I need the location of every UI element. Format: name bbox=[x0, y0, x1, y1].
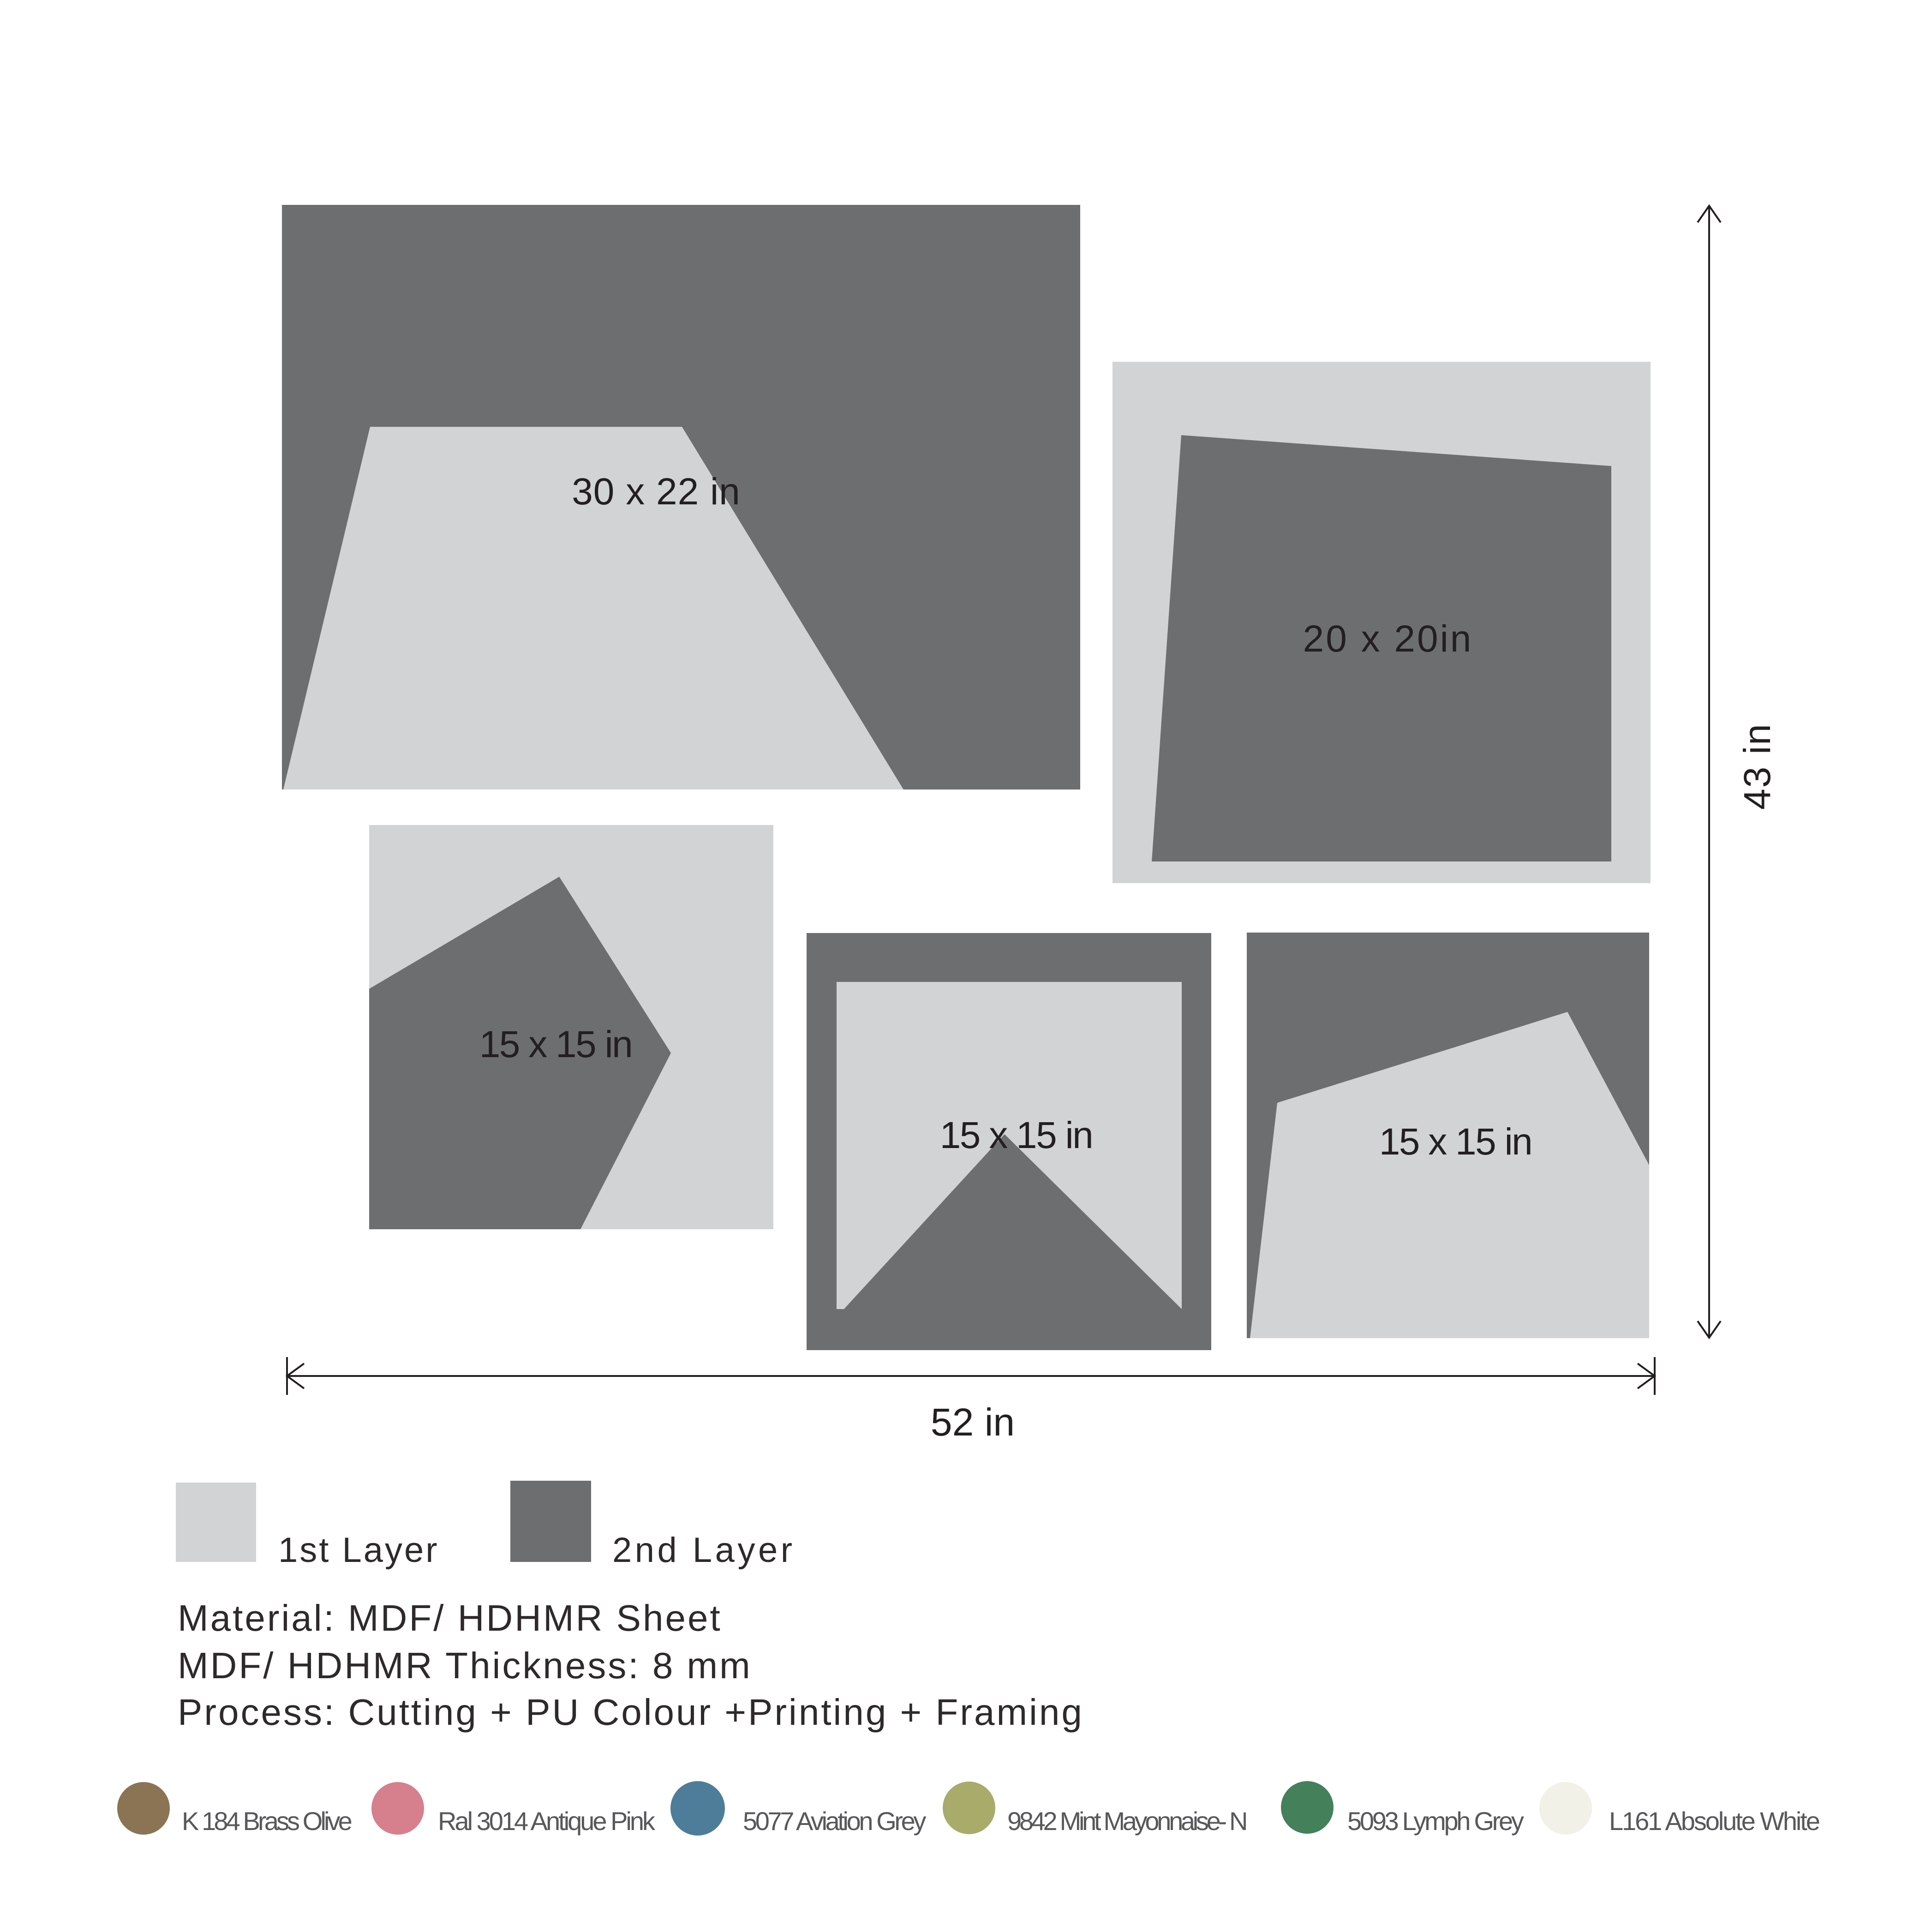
svg-text:43 in: 43 in bbox=[1736, 723, 1778, 810]
svg-text:Material: MDF/ HDHMR Sheet: Material: MDF/ HDHMR Sheet bbox=[178, 1597, 722, 1639]
svg-text:Ral 3014 Antique Pink: Ral 3014 Antique Pink bbox=[438, 1806, 656, 1836]
svg-text:1st Layer: 1st Layer bbox=[278, 1531, 439, 1570]
svg-text:2nd Layer: 2nd Layer bbox=[612, 1531, 796, 1570]
svg-text:52 in: 52 in bbox=[931, 1400, 1015, 1444]
svg-text:5093 Lymph Grey: 5093 Lymph Grey bbox=[1347, 1806, 1524, 1836]
svg-text:20 x 20in: 20 x 20in bbox=[1303, 618, 1473, 660]
svg-text:MDF/ HDHMR Thickness: 8 mm: MDF/ HDHMR Thickness: 8 mm bbox=[178, 1645, 752, 1686]
svg-text:15 x 15 in: 15 x 15 in bbox=[1379, 1121, 1532, 1163]
svg-text:9842 Mint Mayonnaise- N: 9842 Mint Mayonnaise- N bbox=[1007, 1806, 1246, 1836]
svg-text:K 184 Brass Olive: K 184 Brass Olive bbox=[182, 1806, 352, 1836]
svg-text:L161 Absolute White: L161 Absolute White bbox=[1609, 1806, 1819, 1836]
svg-text:Process: Cutting + PU Colour +: Process: Cutting + PU Colour +Printing +… bbox=[178, 1692, 1084, 1733]
svg-text:15 x 15 in: 15 x 15 in bbox=[479, 1023, 632, 1065]
svg-text:30 x 22 in: 30 x 22 in bbox=[572, 471, 741, 513]
svg-text:5077 Aviation Grey: 5077 Aviation Grey bbox=[743, 1806, 926, 1836]
svg-text:15 x 15 in: 15 x 15 in bbox=[940, 1114, 1093, 1156]
